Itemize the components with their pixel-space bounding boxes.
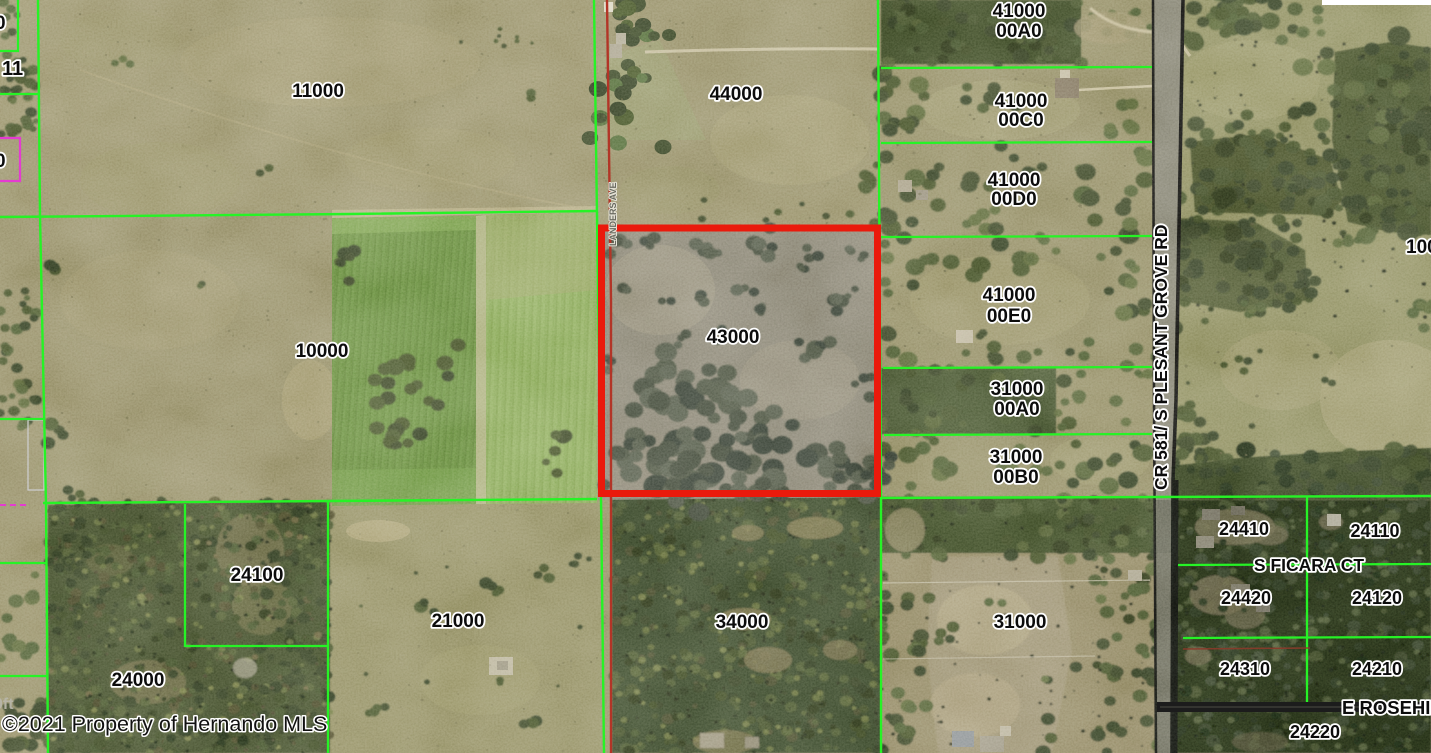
svg-text:LANDERS AVE: LANDERS AVE — [608, 182, 618, 246]
svg-text:00A0: 00A0 — [994, 399, 1039, 420]
svg-text:24100: 24100 — [231, 565, 284, 586]
svg-text:24210: 24210 — [1352, 659, 1402, 679]
svg-text:11000: 11000 — [292, 81, 344, 102]
svg-text:31000: 31000 — [994, 612, 1047, 633]
svg-text:10000: 10000 — [296, 341, 349, 362]
svg-text:41000: 41000 — [993, 1, 1046, 22]
svg-text:43000: 43000 — [707, 327, 760, 348]
svg-text:0ft: 0ft — [0, 696, 14, 713]
svg-text:E ROSEHIL: E ROSEHIL — [1342, 697, 1431, 718]
svg-text:100: 100 — [1406, 237, 1431, 258]
svg-text:0: 0 — [0, 13, 6, 34]
svg-text:31000: 31000 — [990, 447, 1043, 468]
svg-text:21000: 21000 — [432, 611, 485, 632]
svg-text:24220: 24220 — [1290, 722, 1340, 742]
svg-text:44000: 44000 — [710, 84, 763, 105]
svg-text:24120: 24120 — [1352, 588, 1402, 608]
svg-text:41000: 41000 — [988, 170, 1041, 191]
svg-text:00A0: 00A0 — [996, 21, 1041, 42]
svg-text:00B0: 00B0 — [993, 467, 1038, 488]
svg-text:0: 0 — [0, 151, 6, 172]
svg-text:00C0: 00C0 — [998, 110, 1043, 131]
svg-text:24310: 24310 — [1220, 659, 1270, 679]
svg-text:24000: 24000 — [112, 670, 165, 691]
svg-text:©2021 Property of Hernando MLS: ©2021 Property of Hernando MLS — [2, 712, 327, 736]
svg-text:24410: 24410 — [1219, 519, 1269, 539]
svg-text:41000: 41000 — [995, 91, 1048, 112]
svg-text:CR 581/ S PLESANT GROVE RD: CR 581/ S PLESANT GROVE RD — [1151, 225, 1171, 490]
svg-text:00D0: 00D0 — [991, 189, 1036, 210]
svg-text:11: 11 — [2, 58, 23, 80]
svg-text:00E0: 00E0 — [987, 306, 1031, 327]
svg-text:34000: 34000 — [716, 612, 769, 633]
svg-text:41000: 41000 — [983, 285, 1036, 306]
svg-text:S FICARA CT: S FICARA CT — [1254, 555, 1364, 575]
svg-text:24110: 24110 — [1350, 521, 1399, 541]
svg-text:31000: 31000 — [991, 379, 1044, 400]
svg-text:24420: 24420 — [1221, 588, 1271, 608]
